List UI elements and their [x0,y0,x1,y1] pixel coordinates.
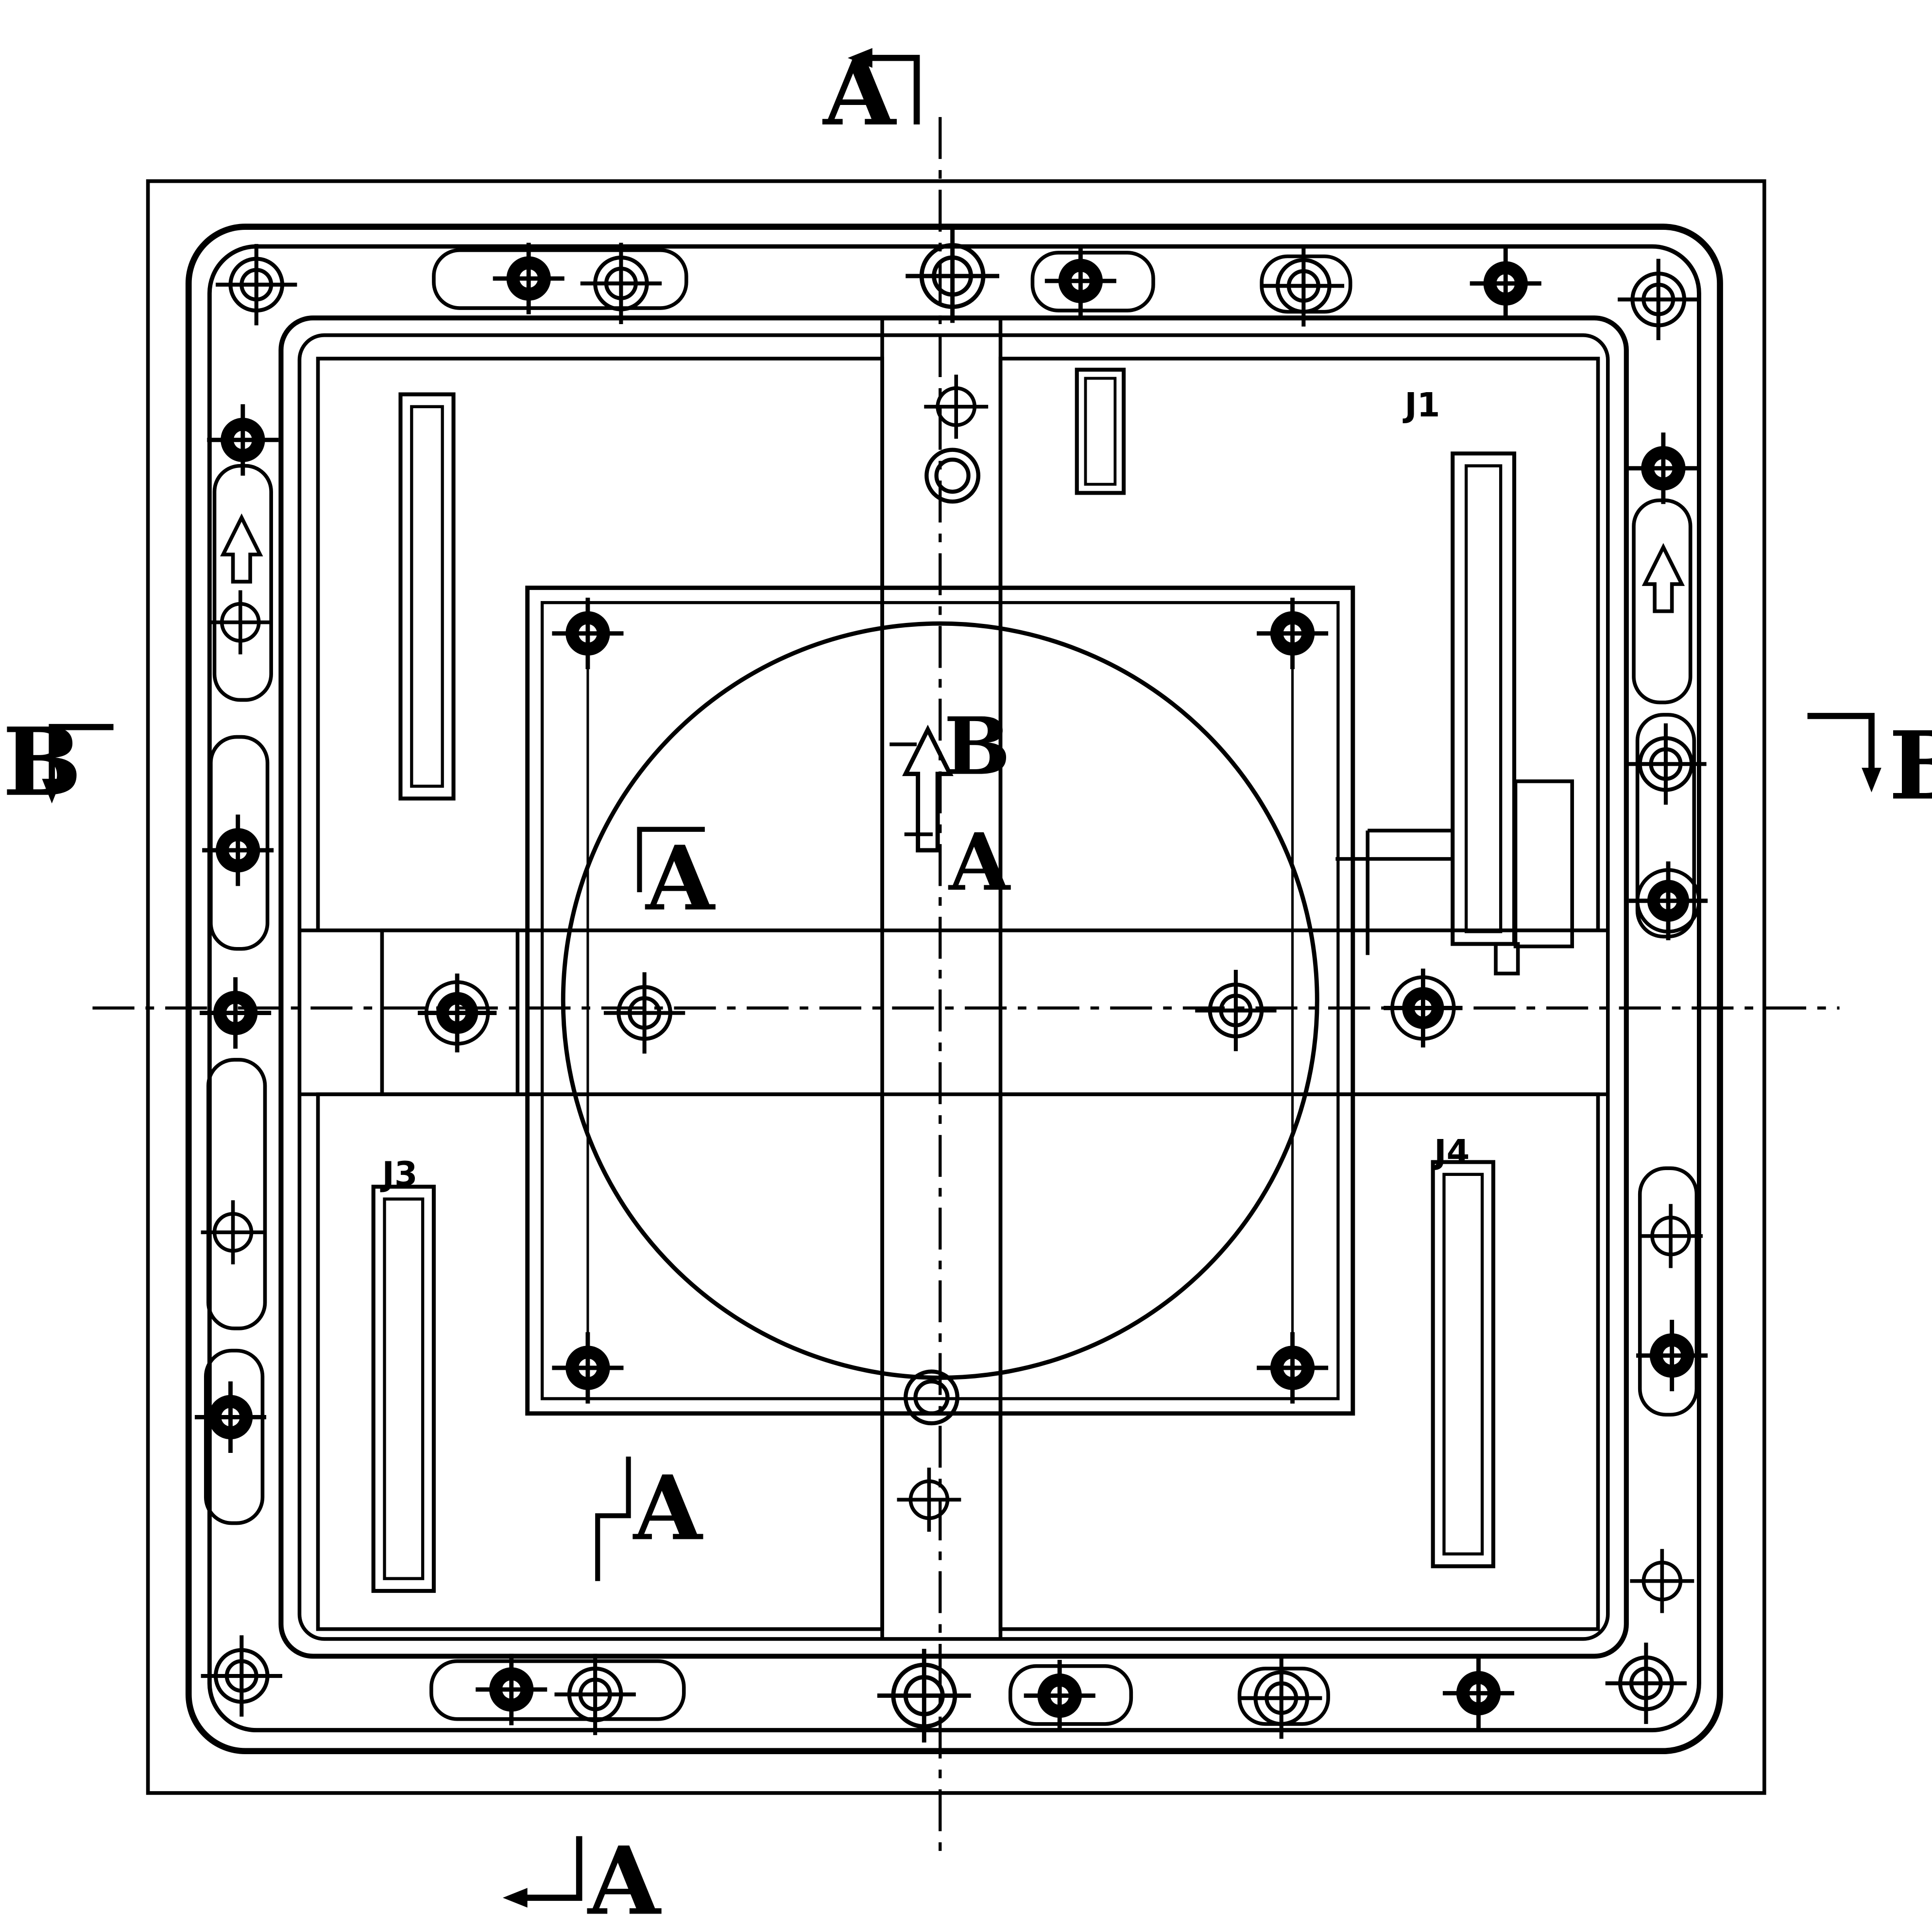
filled-ring-crosshair-hole [418,973,496,1052]
slot-bottom-left [374,1187,434,1591]
arrowhead-left-icon [503,1888,528,1908]
open-crosshair-hole [1195,970,1276,1051]
inner-rounded-frame-inner-line [300,335,1608,1639]
section-label-a-bottom: A [587,1826,662,1915]
small-crosshair-hole [208,590,273,655]
component-label-j3: J3 [380,1155,417,1194]
connector-tab [1496,944,1518,974]
open-crosshair-hole [554,1654,635,1735]
small-crosshair-hole [1630,1549,1694,1613]
open-crosshair-hole [581,243,662,324]
channel-features [897,375,988,1532]
up-arrow-icon [1645,547,1682,611]
centerlines [92,117,1839,1861]
arrowhead-down-icon [1862,768,1881,793]
hollow-up-arrow-icon [906,729,950,850]
section-mark-b-left: B [2,707,113,817]
capsule-slot [1640,1168,1697,1415]
center-flow-arrow-group: B A [889,701,1011,909]
filled-crosshair-hole [207,404,278,476]
small-crosshair-hole [924,375,988,439]
section-label-b-left: B [2,707,82,817]
section-mark-b-right: B [1808,711,1932,821]
connector-box [1516,781,1573,947]
component-label-j4: J4 [1432,1133,1470,1172]
technical-drawing-canvas: B A A A B B A [0,0,1932,1915]
small-crosshair-hole [1639,1204,1703,1268]
section-label-a-mid-upper: A [645,827,716,931]
section-label-a-top: A [822,37,897,147]
filled-crosshair-hole [552,598,623,669]
plain-ring-hole [926,450,978,502]
filled-crosshair-hole [1470,248,1541,319]
open-crosshair-hole [604,972,685,1053]
section-mark-a-bottom: A [503,1826,662,1915]
filled-crosshair-hole [493,243,564,314]
perimeter-capsule-slots [206,250,1697,1724]
section-label-center-a: A [948,816,1011,909]
filled-crosshair-hole [1257,598,1328,669]
filled-crosshair-hole [1443,1657,1514,1729]
section-label-center-b: B [944,701,1010,793]
capsule-slot [431,1661,684,1719]
small-crosshair-hole [897,1467,961,1532]
filled-crosshair-hole [202,814,274,886]
filled-crosshair-hole [476,1654,547,1725]
open-crosshair-hole-large [906,229,999,323]
section-mark-a-mid-upper: A [639,827,716,931]
filled-crosshair-hole [1045,245,1116,317]
open-crosshair-hole [1618,259,1699,340]
capsule-slot [208,1060,265,1328]
filled-crosshair-hole [1627,432,1699,504]
component-label-j1: J1 [1402,386,1440,425]
slot-bottom-right [1433,1162,1493,1566]
section-label-b-right: B [1889,711,1932,821]
quadrant-panels [318,359,1598,1629]
slot-right [1453,453,1514,944]
up-arrow-icon [223,518,260,582]
filled-crosshair-hole [1024,1660,1095,1731]
section-label-a-mid-lower: A [633,1457,703,1561]
open-crosshair-hole [1606,1643,1687,1724]
slot-top-left [400,395,453,799]
small-top-rect [1077,370,1124,493]
section-mark-a-mid-lower: A [598,1457,703,1581]
section-mark-a-top: A [822,37,917,147]
